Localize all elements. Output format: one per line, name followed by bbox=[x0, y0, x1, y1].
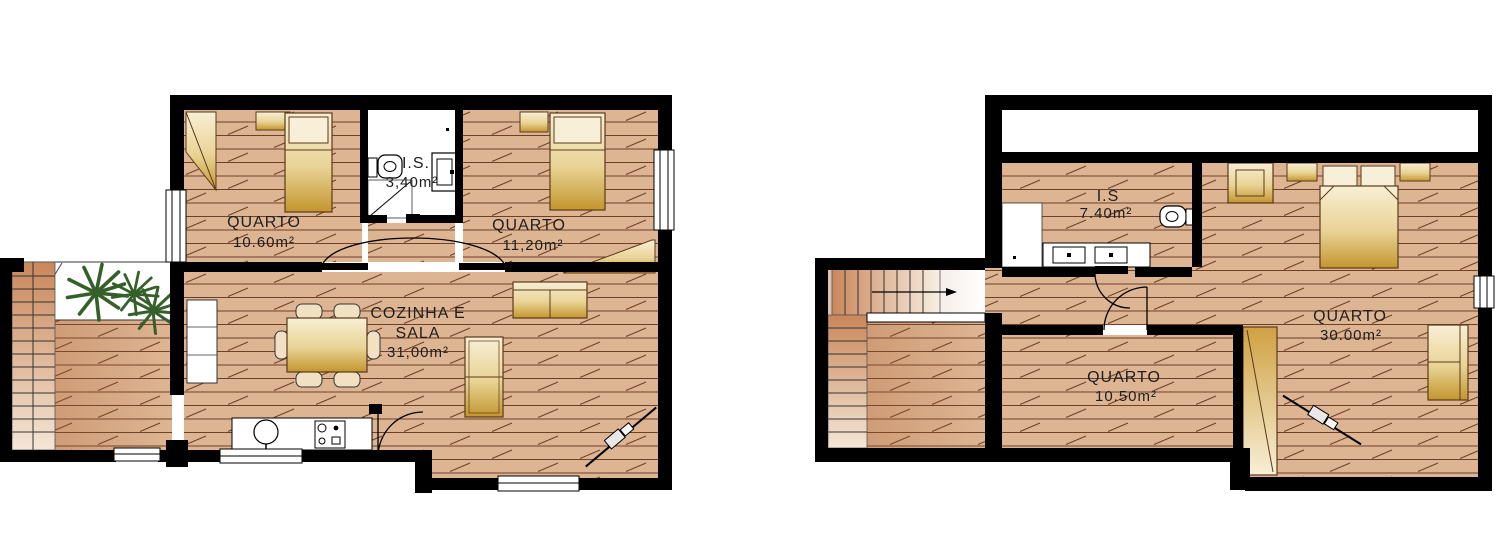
room-area: 30.00m² bbox=[1320, 327, 1382, 344]
shower-tray bbox=[1002, 203, 1042, 267]
bedroom30-floor-ext bbox=[1245, 448, 1478, 477]
armchair bbox=[465, 337, 503, 417]
dining-table bbox=[287, 318, 367, 372]
room-label: QUARTO bbox=[1087, 369, 1161, 386]
room-area: 10.60m² bbox=[233, 234, 295, 251]
window bbox=[498, 476, 579, 491]
sofa bbox=[1428, 325, 1468, 400]
room-label: COZINHA E bbox=[370, 305, 465, 322]
nightstand bbox=[1287, 163, 1317, 181]
room-area: 7.40m² bbox=[1080, 205, 1133, 222]
window bbox=[654, 150, 674, 230]
window bbox=[1474, 276, 1494, 308]
nightstand bbox=[1400, 163, 1430, 181]
floor-plan-canvas: QUARTO 10.60m² I.S. 3,40m² QUARTO 11,20m… bbox=[0, 0, 1507, 557]
room-label: QUARTO bbox=[227, 214, 301, 231]
kitchen-sink bbox=[254, 420, 278, 444]
toilet bbox=[1160, 206, 1194, 227]
kitchen-counter bbox=[232, 418, 372, 452]
room-label: I.S bbox=[1097, 188, 1120, 205]
living-floor-ext bbox=[430, 450, 658, 478]
hall-floor bbox=[368, 223, 455, 262]
single-bed bbox=[285, 113, 332, 212]
double-vanity bbox=[1043, 243, 1150, 267]
floor-plan-drawing: QUARTO 10.60m² I.S. 3,40m² QUARTO 11,20m… bbox=[0, 0, 1507, 557]
window bbox=[166, 190, 186, 262]
room-area: 10.50m² bbox=[1095, 388, 1157, 405]
room-area: 3,40m² bbox=[386, 174, 439, 191]
single-bed bbox=[550, 113, 605, 210]
wardrobe bbox=[1228, 163, 1273, 203]
vent-mark bbox=[446, 128, 449, 131]
sideboard bbox=[187, 300, 217, 383]
sofa bbox=[513, 282, 587, 318]
window bbox=[220, 449, 302, 463]
room-label: QUARTO bbox=[1313, 308, 1387, 325]
stove bbox=[315, 421, 345, 448]
ground-floor-plan: QUARTO 10.60m² I.S. 3,40m² QUARTO 11,20m… bbox=[0, 95, 674, 493]
upper-floor-plan: I.S 7.40m² QUARTO 30.00m² QUARTO 10.50m² bbox=[815, 95, 1494, 491]
room-area: 31,00m² bbox=[387, 344, 449, 361]
room-label: SALA bbox=[396, 325, 441, 342]
stairs-ground bbox=[12, 262, 55, 450]
stair-opening-floor bbox=[985, 268, 1002, 313]
room-area: 11,20m² bbox=[503, 237, 564, 254]
void-strip bbox=[1000, 110, 1478, 152]
room-label: QUARTO bbox=[492, 217, 566, 234]
room-label: I.S. bbox=[402, 155, 430, 172]
nightstand bbox=[520, 112, 548, 132]
window bbox=[114, 448, 160, 461]
